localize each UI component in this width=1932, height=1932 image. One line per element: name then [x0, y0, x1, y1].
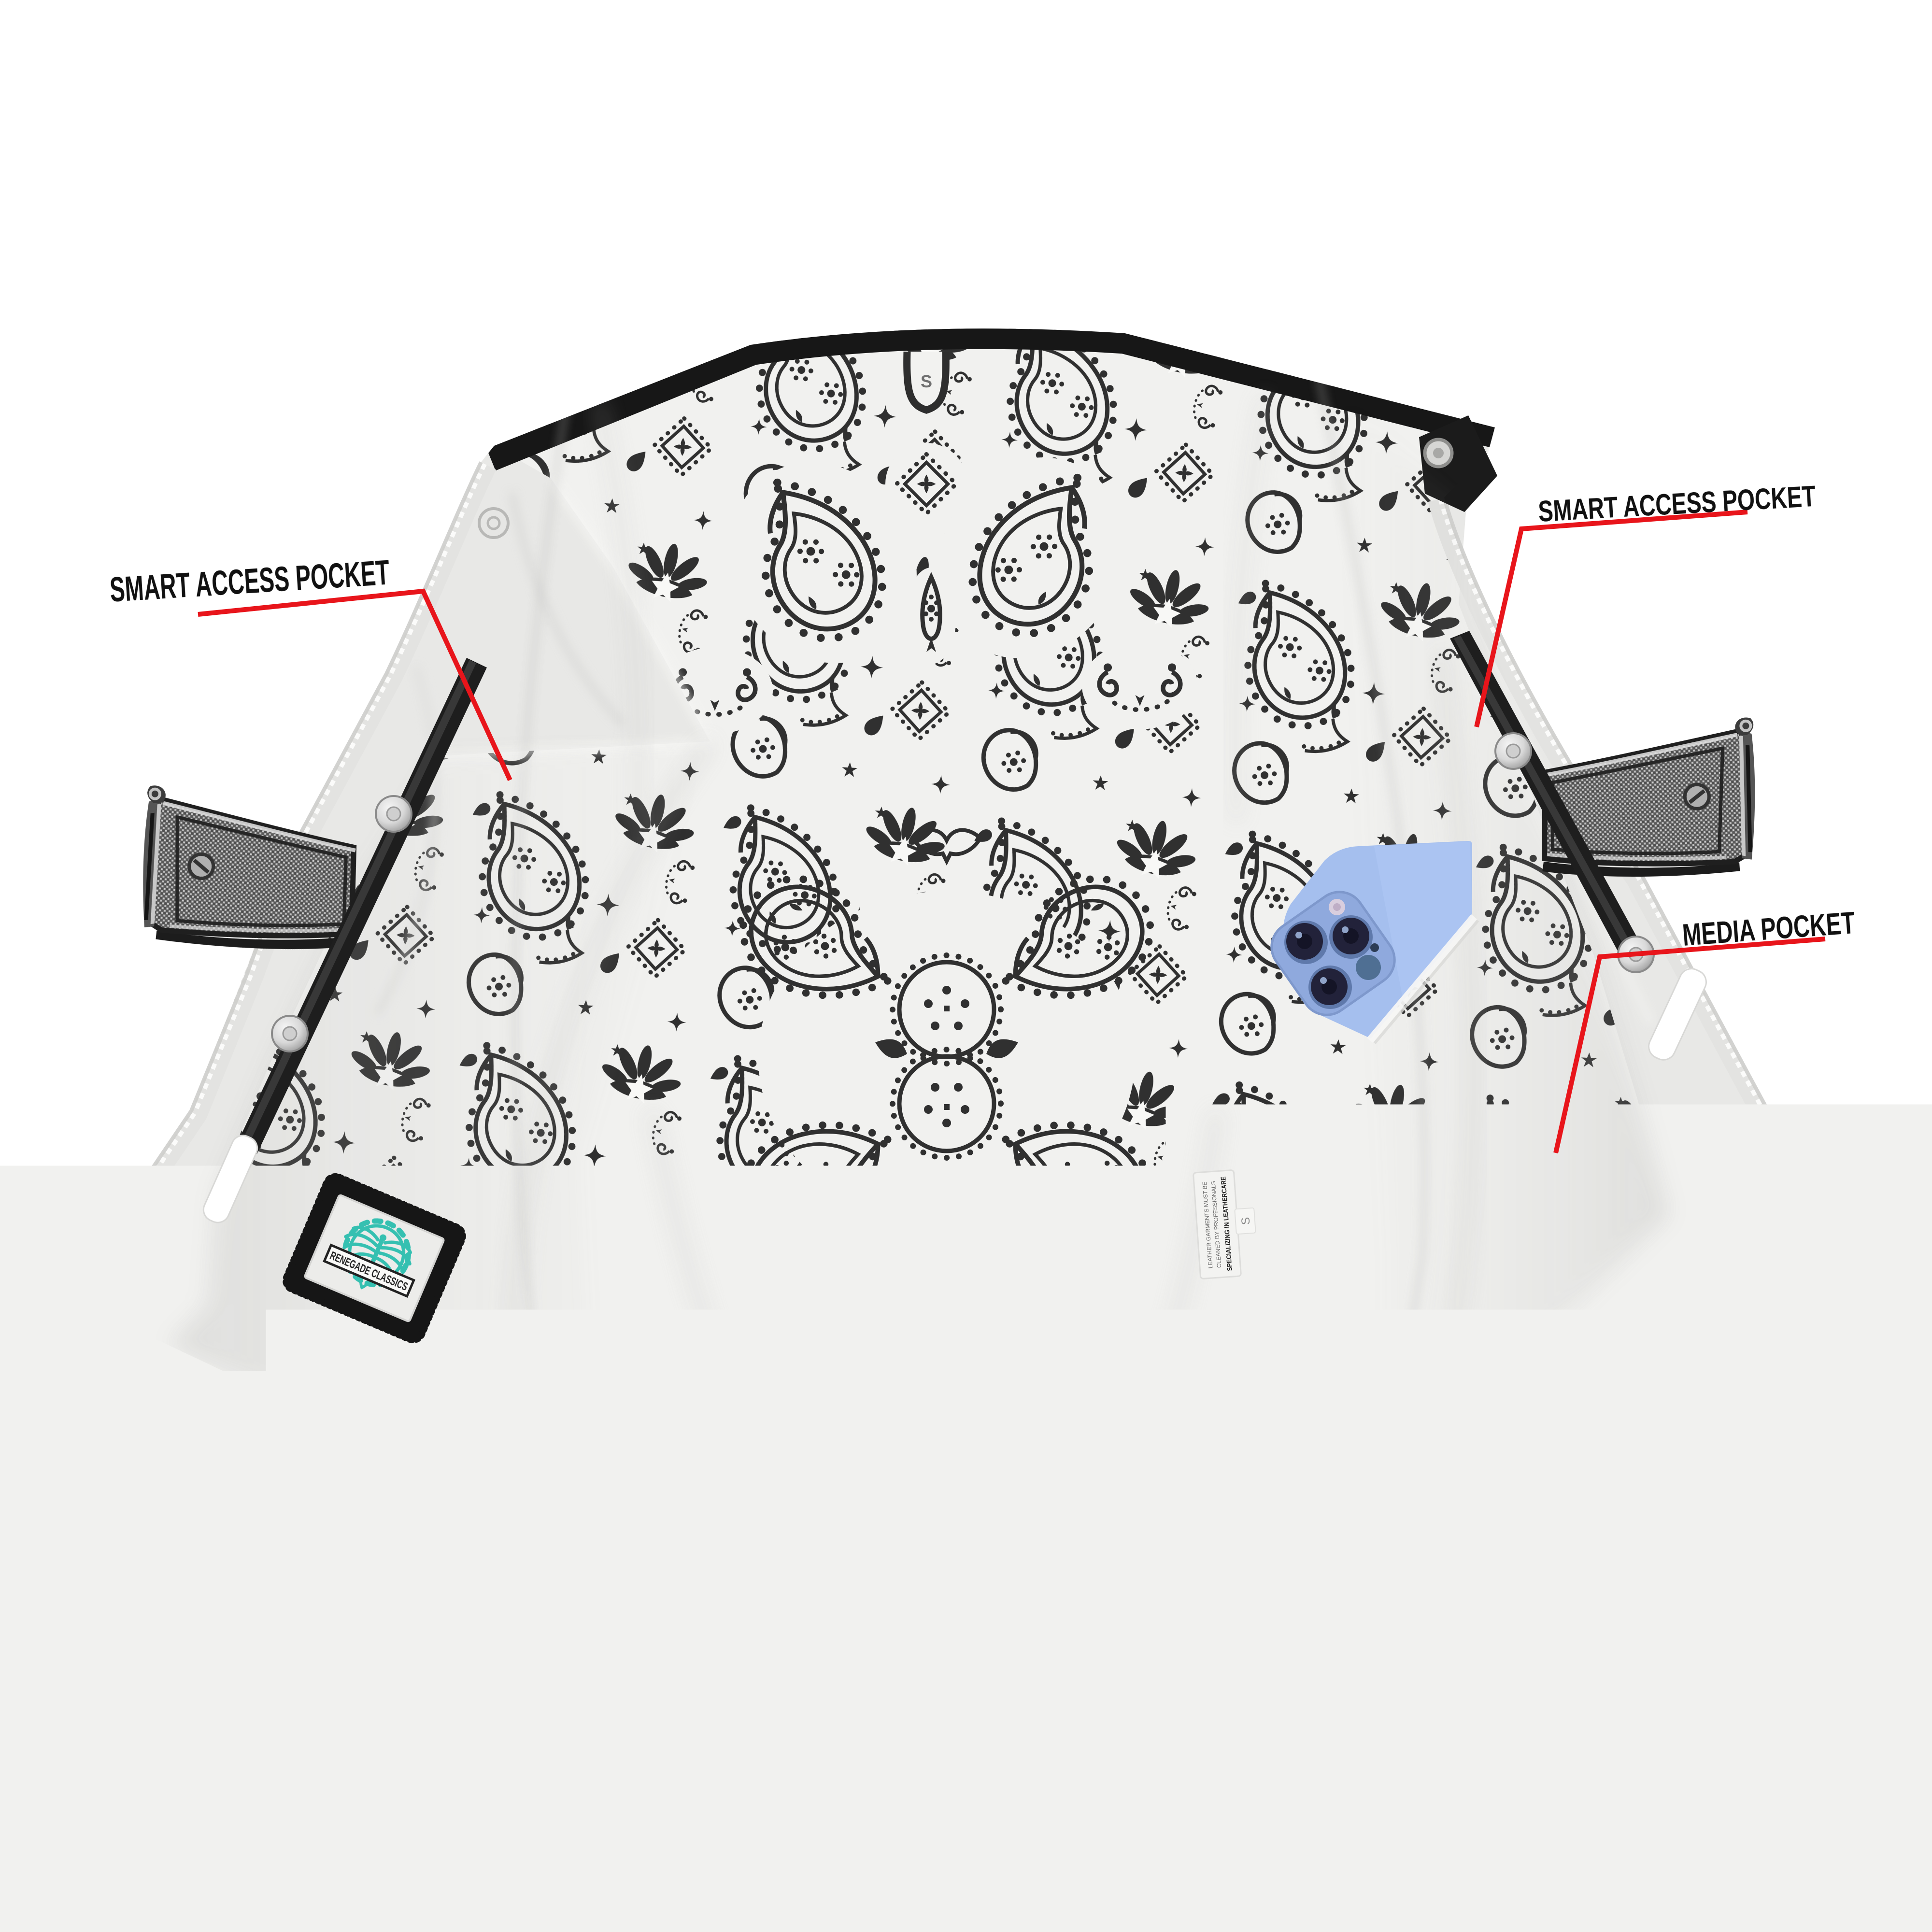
svg-text:S: S [1239, 1217, 1252, 1225]
svg-text:S: S [921, 371, 932, 391]
